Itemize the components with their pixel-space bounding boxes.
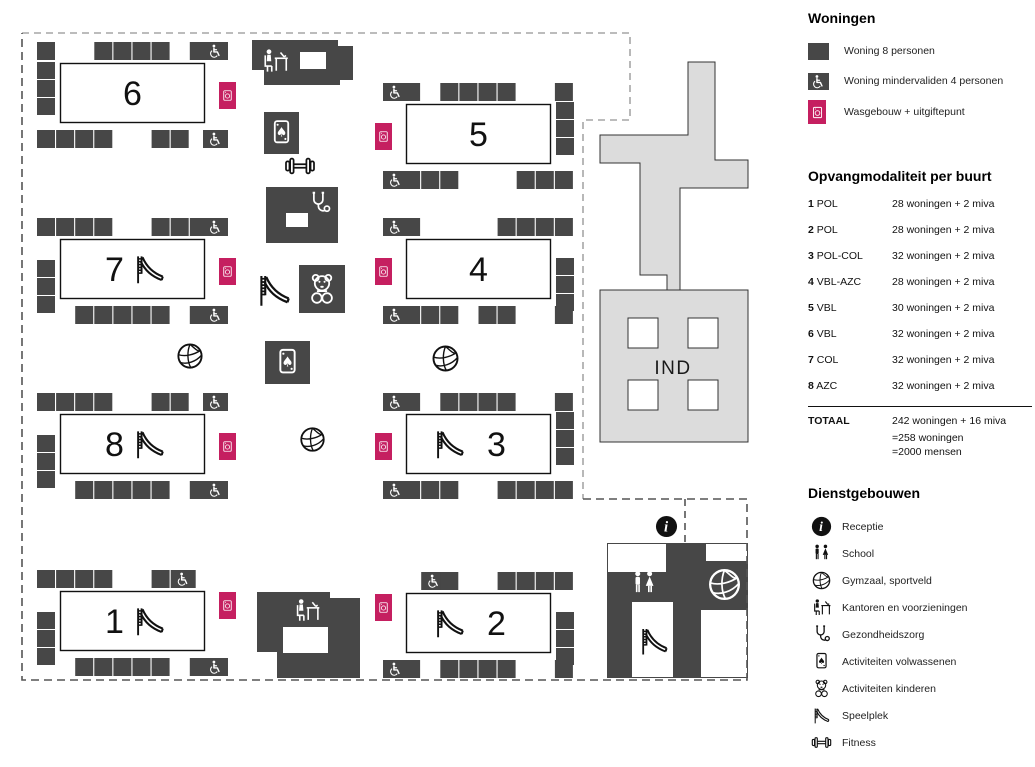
buurt-nummer: 4 bbox=[469, 251, 488, 289]
woning-8 bbox=[402, 83, 420, 101]
legend-item-label: Gymzaal, sportveld bbox=[842, 575, 932, 587]
legend-item-miva: Woning mindervaliden 4 personen bbox=[808, 70, 1032, 92]
legend-item-volleyball: Gymzaal, sportveld bbox=[808, 569, 1032, 592]
woning-8-icon bbox=[808, 43, 829, 60]
gymzaal bbox=[701, 561, 748, 609]
woning-8 bbox=[440, 83, 458, 101]
woning-8 bbox=[555, 572, 573, 590]
info-icon bbox=[811, 516, 832, 537]
buurt-key: 8 AZC bbox=[808, 380, 892, 393]
legend-item-slide: Speelplek bbox=[808, 704, 1032, 727]
woning-8 bbox=[75, 306, 93, 324]
woning-8 bbox=[37, 42, 55, 60]
volleyball-icon bbox=[178, 344, 201, 367]
legend-item-label: Wasgebouw + uitgiftepunt bbox=[844, 106, 965, 118]
legend-item-label: Kantoren en voorzieningen bbox=[842, 602, 968, 614]
woning-8 bbox=[171, 218, 189, 236]
woning-8 bbox=[113, 658, 131, 676]
total-label: TOTAAL bbox=[808, 415, 892, 428]
woning-8 bbox=[440, 572, 458, 590]
woning-8 bbox=[37, 630, 55, 647]
woning-8 bbox=[498, 572, 516, 590]
woning-8 bbox=[56, 570, 74, 588]
woning-8 bbox=[152, 393, 170, 411]
woning-8 bbox=[75, 658, 93, 676]
woning-8 bbox=[37, 130, 55, 148]
woning-8 bbox=[37, 435, 55, 452]
legend-item-label: Activiteiten kinderen bbox=[842, 683, 936, 695]
woning-8 bbox=[536, 572, 554, 590]
woning-8 bbox=[94, 658, 112, 676]
modaliteit-row-5: 5 VBL30 woningen + 2 miva bbox=[808, 302, 1032, 315]
woning-8 bbox=[517, 171, 535, 189]
modaliteit-row-4: 4 VBL-AZC28 woningen + 2 miva bbox=[808, 276, 1032, 289]
woning-8 bbox=[555, 171, 573, 189]
legend-item-info: Receptie bbox=[808, 515, 1032, 538]
woning-8 bbox=[421, 306, 439, 324]
woning-8 bbox=[556, 648, 574, 665]
woning-8 bbox=[517, 218, 535, 236]
woning-8 bbox=[556, 258, 574, 275]
woning-8 bbox=[152, 306, 170, 324]
legend-item-wash: Wasgebouw + uitgiftepunt bbox=[808, 100, 1032, 124]
kantoren-zuid-venster bbox=[283, 627, 328, 653]
woning-8 bbox=[402, 660, 420, 678]
buurt-nummer: 6 bbox=[123, 75, 142, 113]
buurt-value: 28 woningen + 2 miva bbox=[892, 276, 1032, 289]
buurt-nummer: 2 bbox=[487, 605, 506, 643]
diensten-title: Dienstgebouwen bbox=[808, 485, 1032, 501]
woning-8 bbox=[171, 393, 189, 411]
buurt-key: 3 POL-COL bbox=[808, 250, 892, 263]
buurt-key: 1 POL bbox=[808, 198, 892, 211]
modaliteit-row-7: 7 COL32 woningen + 2 miva bbox=[808, 354, 1032, 367]
woning-8 bbox=[402, 393, 420, 411]
activiteiten-kinderen-gebouw bbox=[299, 265, 345, 313]
ind-binnenplaats bbox=[628, 318, 658, 348]
legend-item-office: Kantoren en voorzieningen bbox=[808, 596, 1032, 619]
woning-8 bbox=[498, 660, 516, 678]
woning-8 bbox=[75, 130, 93, 148]
woning-8 bbox=[402, 481, 420, 499]
woning-8 bbox=[56, 130, 74, 148]
legend-item-health: Gezondheidszorg bbox=[808, 623, 1032, 646]
woningen-title: Woningen bbox=[808, 10, 1032, 26]
buurt-key: 5 VBL bbox=[808, 302, 892, 315]
woning-miva-icon bbox=[808, 73, 829, 90]
woning-8 bbox=[37, 393, 55, 411]
woning-8 bbox=[75, 218, 93, 236]
ind-verbindingsgebouw bbox=[600, 62, 748, 290]
woning-8 bbox=[94, 570, 112, 588]
legend-item-label: Speelplek bbox=[842, 710, 888, 722]
woning-8 bbox=[536, 171, 554, 189]
volleyball-icon bbox=[811, 570, 832, 591]
woning-8 bbox=[133, 658, 151, 676]
binnenplein bbox=[407, 415, 551, 474]
total-extra: =258 woningen=2000 mensen bbox=[892, 431, 1032, 459]
woning-8 bbox=[498, 218, 516, 236]
legend-item-label: Receptie bbox=[842, 521, 883, 533]
woning-8 bbox=[517, 572, 535, 590]
woning-8 bbox=[536, 218, 554, 236]
legend-item-label: Activiteiten volwassenen bbox=[842, 656, 956, 668]
woning-8 bbox=[459, 393, 477, 411]
gezondheidszorg-venster bbox=[286, 213, 308, 227]
legend-item-unit8: Woning 8 personen bbox=[808, 40, 1032, 62]
woning-8 bbox=[479, 393, 497, 411]
fitness-icon bbox=[811, 732, 832, 753]
woning-8 bbox=[152, 658, 170, 676]
woning-8 bbox=[133, 42, 151, 60]
woonblok-8: 8 bbox=[37, 393, 236, 499]
buurt-key: 7 COL bbox=[808, 354, 892, 367]
volleyball-icon bbox=[301, 428, 323, 450]
wasgebouw-icon bbox=[808, 100, 826, 124]
modaliteit-title: Opvangmodaliteit per buurt bbox=[808, 168, 1032, 184]
site-plan-map: IND67815432 bbox=[0, 0, 790, 767]
woning-8 bbox=[556, 102, 574, 119]
woning-8 bbox=[459, 83, 477, 101]
buurt-value: 32 woningen + 2 miva bbox=[892, 380, 1032, 393]
volleyball-icon bbox=[433, 346, 457, 370]
ind-binnenplaats bbox=[628, 380, 658, 410]
woning-8 bbox=[556, 138, 574, 155]
woning-8 bbox=[75, 570, 93, 588]
woning-8 bbox=[556, 448, 574, 465]
woning-8 bbox=[402, 306, 420, 324]
health-icon bbox=[811, 624, 832, 645]
fitness-icon bbox=[286, 159, 314, 174]
woning-8 bbox=[498, 481, 516, 499]
woning-8 bbox=[37, 80, 55, 97]
site-plan-page: ♠ bbox=[0, 0, 1035, 767]
woning-8 bbox=[94, 218, 112, 236]
woning-8 bbox=[75, 481, 93, 499]
school-icon bbox=[811, 543, 832, 564]
woonblok-1: 1 bbox=[37, 570, 236, 676]
woning-8 bbox=[479, 306, 497, 324]
woning-8 bbox=[133, 306, 151, 324]
modaliteit-row-3: 3 POL-COL32 woningen + 2 miva bbox=[808, 250, 1032, 263]
binnenplein bbox=[61, 592, 205, 651]
wasgebouw bbox=[375, 594, 392, 621]
legend-item-label: Gezondheidszorg bbox=[842, 629, 924, 641]
woning-8 bbox=[37, 62, 55, 79]
woning-8 bbox=[94, 481, 112, 499]
woning-8 bbox=[556, 294, 574, 311]
woning-8 bbox=[152, 570, 170, 588]
woning-8 bbox=[113, 481, 131, 499]
woning-8 bbox=[421, 171, 439, 189]
buurt-nummer: 3 bbox=[487, 426, 506, 464]
buurt-nummer: 7 bbox=[105, 251, 124, 289]
woning-8 bbox=[113, 42, 131, 60]
woning-8 bbox=[556, 276, 574, 293]
binnenplein bbox=[407, 594, 551, 653]
woonblok-3: 3 bbox=[375, 393, 574, 499]
binnenplein bbox=[61, 240, 205, 299]
woning-8 bbox=[75, 393, 93, 411]
total-extra-line: =2000 mensen bbox=[892, 445, 1032, 459]
modaliteit-row-2: 2 POL28 woningen + 2 miva bbox=[808, 224, 1032, 237]
buurt-value: 32 woningen + 2 miva bbox=[892, 250, 1032, 263]
woning-8 bbox=[555, 83, 573, 101]
ind-binnenplaats bbox=[688, 380, 718, 410]
woonblok-4: 4 bbox=[375, 218, 574, 324]
woning-8 bbox=[37, 218, 55, 236]
woning-8 bbox=[498, 306, 516, 324]
woningen-legend-list: Woning 8 personenWoning mindervaliden 4 … bbox=[808, 40, 1032, 124]
receptie-uitsparing bbox=[706, 544, 747, 561]
buurt-nummer: 8 bbox=[105, 426, 124, 464]
woning-8 bbox=[402, 171, 420, 189]
diensten-legend-list: ReceptieSchoolGymzaal, sportveldKantoren… bbox=[808, 515, 1032, 754]
slide-icon bbox=[261, 276, 288, 306]
woning-8 bbox=[37, 471, 55, 488]
woning-8 bbox=[440, 660, 458, 678]
woonblok-7: 7 bbox=[37, 218, 236, 324]
wasgebouw bbox=[375, 433, 392, 460]
woning-8 bbox=[152, 481, 170, 499]
woning-8 bbox=[37, 570, 55, 588]
woning-8 bbox=[440, 306, 458, 324]
kantoren-noord-venster bbox=[300, 52, 326, 69]
woning-8 bbox=[440, 171, 458, 189]
buurt-nummer: 1 bbox=[105, 603, 124, 641]
woning-8 bbox=[556, 412, 574, 429]
wasgebouw bbox=[219, 592, 236, 619]
woning-8 bbox=[94, 306, 112, 324]
modaliteit-table: 1 POL28 woningen + 2 miva2 POL28 woninge… bbox=[808, 198, 1032, 393]
legend-panel: Woningen Woning 8 personenWoning minderv… bbox=[808, 10, 1032, 758]
woonblok-6: 6 bbox=[37, 42, 236, 148]
woning-8 bbox=[94, 393, 112, 411]
woning-8 bbox=[479, 660, 497, 678]
buurt-key: 2 POL bbox=[808, 224, 892, 237]
woning-8 bbox=[56, 393, 74, 411]
slide-icon bbox=[811, 705, 832, 726]
woning-8 bbox=[440, 481, 458, 499]
woning-8 bbox=[498, 83, 516, 101]
receptie-icon bbox=[656, 516, 677, 537]
buurt-value: 28 woningen + 2 miva bbox=[892, 198, 1032, 211]
woning-8 bbox=[37, 648, 55, 665]
woning-8 bbox=[152, 130, 170, 148]
woning-8 bbox=[152, 42, 170, 60]
woning-8 bbox=[555, 393, 573, 411]
receptie-uitsparing bbox=[701, 610, 747, 677]
woning-8 bbox=[555, 481, 573, 499]
legend-item-school: School bbox=[808, 542, 1032, 565]
woning-8 bbox=[402, 218, 420, 236]
woonblok-5: 5 bbox=[375, 83, 574, 189]
modaliteit-row-8: 8 AZC32 woningen + 2 miva bbox=[808, 380, 1032, 393]
wasgebouw bbox=[219, 258, 236, 285]
modaliteit-row-1: 1 POL28 woningen + 2 miva bbox=[808, 198, 1032, 211]
modaliteit-row-6: 6 VBL32 woningen + 2 miva bbox=[808, 328, 1032, 341]
table-divider bbox=[808, 406, 1032, 407]
total-value: 242 woningen + 16 miva bbox=[892, 415, 1032, 428]
legend-item-label: School bbox=[842, 548, 874, 560]
legend-item-cards: Activiteiten volwassenen bbox=[808, 650, 1032, 673]
office-icon bbox=[811, 597, 832, 618]
woning-8 bbox=[556, 430, 574, 447]
woning-8 bbox=[152, 218, 170, 236]
buurt-value: 30 woningen + 2 miva bbox=[892, 302, 1032, 315]
teddy-icon bbox=[811, 678, 832, 699]
wheelchair-icon bbox=[811, 74, 826, 89]
legend-item-label: Woning 8 personen bbox=[844, 45, 935, 57]
woning-8 bbox=[37, 278, 55, 295]
woning-8 bbox=[113, 306, 131, 324]
woning-8 bbox=[37, 453, 55, 470]
woning-8 bbox=[440, 393, 458, 411]
woning-8 bbox=[556, 120, 574, 137]
total-row: TOTAAL 242 woningen + 16 miva bbox=[808, 415, 1032, 428]
woonblok-2: 2 bbox=[375, 572, 574, 678]
buurt-key: 6 VBL bbox=[808, 328, 892, 341]
woning-8 bbox=[37, 260, 55, 277]
woning-8 bbox=[498, 393, 516, 411]
receptie-uitsparing bbox=[608, 544, 666, 572]
wasgebouw bbox=[375, 258, 392, 285]
woning-8 bbox=[37, 98, 55, 115]
woning-8 bbox=[171, 130, 189, 148]
cards-icon bbox=[811, 651, 832, 672]
ind-binnenplaats bbox=[688, 318, 718, 348]
woning-8 bbox=[421, 481, 439, 499]
washer-icon bbox=[811, 103, 824, 122]
legend-item-label: Fitness bbox=[842, 737, 876, 749]
ind-label: IND bbox=[654, 358, 691, 379]
legend-item-fitness: Fitness bbox=[808, 731, 1032, 754]
total-extra-line: =258 woningen bbox=[892, 431, 1032, 445]
wasgebouw bbox=[375, 123, 392, 150]
woning-8 bbox=[133, 481, 151, 499]
woning-8 bbox=[555, 218, 573, 236]
wasgebouw bbox=[219, 433, 236, 460]
buurt-value: 28 woningen + 2 miva bbox=[892, 224, 1032, 237]
woning-8 bbox=[94, 130, 112, 148]
woning-8 bbox=[459, 660, 477, 678]
woning-8 bbox=[556, 612, 574, 629]
legend-item-label: Woning mindervaliden 4 personen bbox=[844, 75, 1003, 87]
binnenplein bbox=[61, 415, 205, 474]
woning-8 bbox=[37, 612, 55, 629]
buurt-value: 32 woningen + 2 miva bbox=[892, 354, 1032, 367]
buurt-value: 32 woningen + 2 miva bbox=[892, 328, 1032, 341]
woning-8 bbox=[56, 218, 74, 236]
woning-8 bbox=[536, 481, 554, 499]
woning-8 bbox=[517, 481, 535, 499]
buurt-key: 4 VBL-AZC bbox=[808, 276, 892, 289]
wasgebouw bbox=[219, 82, 236, 109]
woning-8 bbox=[94, 42, 112, 60]
buurt-nummer: 5 bbox=[469, 116, 488, 154]
woning-8 bbox=[556, 630, 574, 647]
legend-item-teddy: Activiteiten kinderen bbox=[808, 677, 1032, 700]
woning-8 bbox=[37, 296, 55, 313]
woning-8 bbox=[479, 83, 497, 101]
